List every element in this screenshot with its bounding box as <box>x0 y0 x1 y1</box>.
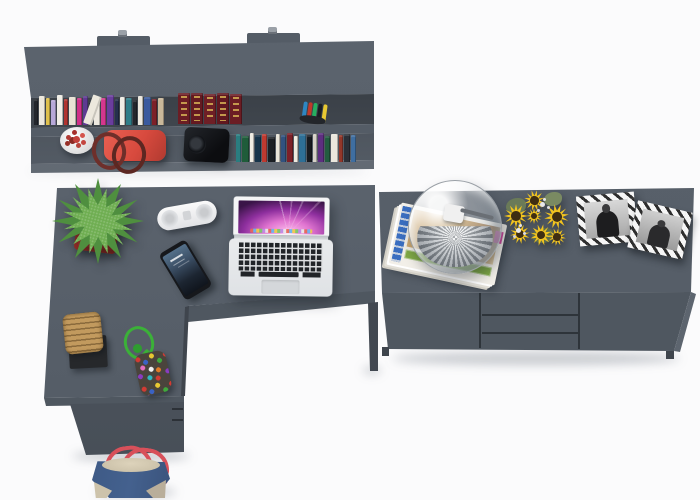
portrait-silhouette <box>646 223 671 249</box>
book-spine <box>39 96 45 125</box>
bouquet-leaf <box>544 192 562 206</box>
book-spine <box>331 134 338 162</box>
baby-breath-florets <box>516 228 521 233</box>
sideboard-drawer-seam <box>482 314 578 316</box>
scene-canvas <box>0 0 700 500</box>
book-spine <box>133 100 137 125</box>
laptop-lid <box>233 196 330 237</box>
book-spine <box>107 95 114 125</box>
laptop <box>228 196 333 296</box>
book-spine <box>255 135 261 162</box>
glass-dome-lamp <box>408 180 502 274</box>
book-row-lower <box>236 131 368 162</box>
shelf-speaker <box>183 127 230 163</box>
sunflower <box>542 202 571 231</box>
sunflower-bouquet <box>504 190 570 246</box>
sideboard-door-seam-right <box>578 293 580 349</box>
book-spine <box>268 137 275 162</box>
book-spine <box>313 134 317 162</box>
lamp-arm <box>460 208 494 220</box>
book-spine <box>339 135 343 162</box>
baby-breath-florets <box>540 202 545 207</box>
book-spine <box>64 99 68 125</box>
mount-pin-icon <box>118 30 127 37</box>
book-spine <box>299 134 306 162</box>
book-spine <box>250 133 254 162</box>
book-spine <box>325 136 330 162</box>
book-spine <box>120 97 125 125</box>
pedestal-drawer-seam <box>172 408 183 410</box>
red-handbag <box>104 130 166 161</box>
keychain-knot <box>133 344 142 353</box>
book-spine <box>344 134 350 162</box>
laptop-body <box>228 238 333 296</box>
book-spine <box>294 136 298 162</box>
sideboard-leg-right <box>666 351 674 359</box>
encyclopedia-spine <box>204 94 216 124</box>
laptop-wallpaper <box>238 200 324 234</box>
book-spine <box>242 136 249 162</box>
laptop-keyboard <box>239 242 323 271</box>
woven-basket <box>62 311 104 355</box>
laptop-trackpad <box>261 280 299 295</box>
book-spine <box>51 100 56 125</box>
book-row-upper <box>34 94 176 125</box>
book-spine <box>307 135 312 162</box>
book-spine <box>126 98 132 125</box>
speaker-button <box>182 210 191 220</box>
book-spine <box>101 98 106 125</box>
book-spine <box>276 134 280 162</box>
book-spine <box>34 99 38 125</box>
red-cactus-flowers <box>73 136 80 143</box>
encyclopedia-spine <box>217 93 229 124</box>
portrait-silhouette <box>595 210 619 238</box>
book-spine <box>57 95 63 125</box>
sunflower <box>523 205 545 227</box>
encyclopedia-spine <box>178 93 190 124</box>
laptop-spacebar-row <box>259 272 299 278</box>
book-spine <box>281 135 286 162</box>
potted-plant <box>52 178 144 264</box>
encyclopedia-set <box>178 93 242 124</box>
book-spine <box>115 99 119 125</box>
flower-pot <box>60 127 94 154</box>
book-spine <box>152 99 157 125</box>
lamp-bulb-housing <box>443 203 466 223</box>
book-spine <box>236 134 241 162</box>
book-spine <box>287 133 293 162</box>
book-spine <box>46 98 50 125</box>
laptop-dock <box>250 229 312 234</box>
book-spine <box>77 98 82 125</box>
sideboard-floor-shadow <box>392 352 680 365</box>
book-spine <box>138 96 143 125</box>
book-spine <box>318 133 324 162</box>
tote-interior <box>102 458 160 472</box>
sideboard-drawer-seam <box>482 332 578 334</box>
sideboard-leg-left <box>382 347 389 356</box>
book-spine <box>69 97 76 125</box>
book-spine <box>262 134 267 162</box>
encyclopedia-spine <box>230 94 242 124</box>
encyclopedia-spine <box>191 93 203 124</box>
book-spine <box>144 97 151 125</box>
pen-cup <box>301 95 328 122</box>
sideboard-door-seam-left <box>479 293 481 348</box>
tote-bag <box>92 448 170 498</box>
pedestal-drawer-seam <box>172 419 183 421</box>
book-spine <box>158 98 164 125</box>
book-spine <box>351 135 356 162</box>
mount-pin-icon <box>268 27 277 34</box>
